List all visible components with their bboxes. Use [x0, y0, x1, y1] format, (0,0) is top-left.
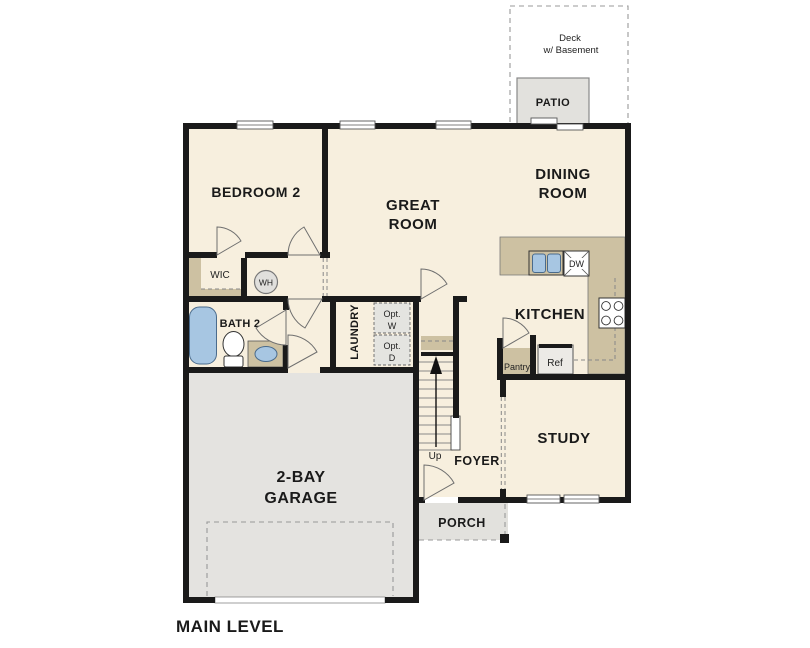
garage-label-line2: GARAGE — [264, 490, 337, 507]
burner — [602, 316, 611, 325]
patio-label: PATIO — [536, 97, 570, 109]
study-window-right — [564, 495, 599, 503]
floor-plan-page: Deck w/ Basement PATIO 2-BAY GARAGE PORC… — [0, 0, 810, 648]
kitchen-fixtures: DW Ref Pantry KITCHEN — [497, 237, 625, 374]
wic-wall-strip — [189, 258, 201, 289]
wic-label: WIC — [210, 270, 229, 281]
exterior-wall-right — [625, 129, 631, 503]
garage-right-wall — [413, 296, 419, 603]
bedroom-greatroom-wall — [322, 129, 328, 252]
stair-right-wall — [453, 302, 459, 418]
great-room-label-line1: GREAT — [386, 197, 440, 214]
bedroom-bottom-wall-a — [183, 252, 217, 258]
study-window-left — [527, 495, 560, 503]
bedroom-bottom-wall-b — [245, 252, 288, 258]
porch-label: PORCH — [438, 516, 486, 530]
dishwasher: DW — [564, 251, 589, 276]
greatroom-window-right — [436, 121, 471, 129]
burner — [614, 302, 623, 311]
bedroom-window — [237, 121, 273, 129]
sink-basin-right — [548, 254, 561, 273]
water-heater-label: WH — [259, 278, 273, 288]
burner — [614, 316, 623, 325]
laundry-left-wall — [330, 302, 336, 367]
garage-top-wall-left — [183, 367, 288, 373]
garage-top-wall-right — [320, 367, 419, 373]
stair-stringer — [451, 416, 460, 450]
optional-dryer-line1: Opt. — [383, 341, 400, 351]
toilet-tank — [224, 356, 243, 367]
study-left-wall-top — [500, 380, 506, 397]
laundry-top-wall — [322, 296, 421, 302]
porch-column — [500, 534, 509, 543]
garage-bottom-wall-left — [183, 597, 215, 603]
kitchen-label: KITCHEN — [515, 306, 585, 323]
optional-washer-line1: Opt. — [383, 309, 400, 319]
exterior-wall-left — [183, 123, 189, 603]
stair-top-wall-stub — [453, 296, 467, 302]
garage-door-threshold — [215, 597, 385, 603]
porch: PORCH — [419, 503, 509, 543]
stair-landing-edge — [421, 352, 453, 356]
garage: 2-BAY GARAGE — [189, 373, 413, 603]
bedroom2-label: BEDROOM 2 — [211, 184, 300, 200]
great-room-label-line2: ROOM — [389, 216, 438, 233]
bathtub — [190, 307, 217, 364]
dishwasher-label: DW — [569, 259, 584, 269]
floor-plan-drawing: Deck w/ Basement PATIO 2-BAY GARAGE PORC… — [0, 0, 810, 648]
optional-dryer-line2: D — [389, 353, 396, 363]
pantry-right-wall — [530, 335, 536, 374]
deck-label-line2: w/ Basement — [543, 45, 599, 56]
foyer-label: FOYER — [454, 454, 500, 468]
laundry-label: LAUNDRY — [349, 304, 361, 360]
bath2-label: BATH 2 — [220, 318, 261, 330]
pantry-label: Pantry — [504, 362, 531, 372]
refrigerator: Ref — [538, 344, 573, 374]
study-label: STUDY — [537, 430, 590, 447]
sink-basin-left — [533, 254, 546, 273]
hall-wall-left — [183, 296, 288, 302]
stairs-up-label: Up — [429, 451, 442, 462]
dining-room-label-line1: DINING — [535, 166, 591, 183]
deck-label-line1: Deck — [559, 33, 581, 44]
toilet-bowl — [223, 332, 244, 357]
stair-landing-strip — [421, 336, 453, 350]
greatroom-window-left — [340, 121, 375, 129]
study-left-wall-bottom — [500, 489, 506, 497]
kitchen-study-wall — [497, 374, 631, 380]
range — [599, 298, 625, 328]
wic-shelf-band — [189, 289, 241, 296]
pantry-left-wall — [497, 344, 503, 374]
garage-label-line1: 2-BAY — [276, 469, 325, 486]
water-heater: WH — [255, 271, 278, 294]
dining-room-label-line2: ROOM — [539, 185, 588, 202]
optional-washer-line2: W — [388, 321, 397, 331]
refrigerator-label: Ref — [547, 358, 563, 369]
burner — [602, 302, 611, 311]
plan-title: MAIN LEVEL — [176, 617, 284, 636]
wic-closet-wall — [241, 258, 247, 296]
bedroom-bottom-wall-c — [320, 252, 330, 258]
refrigerator-top-bar — [539, 344, 572, 348]
vanity-sink — [255, 347, 277, 362]
